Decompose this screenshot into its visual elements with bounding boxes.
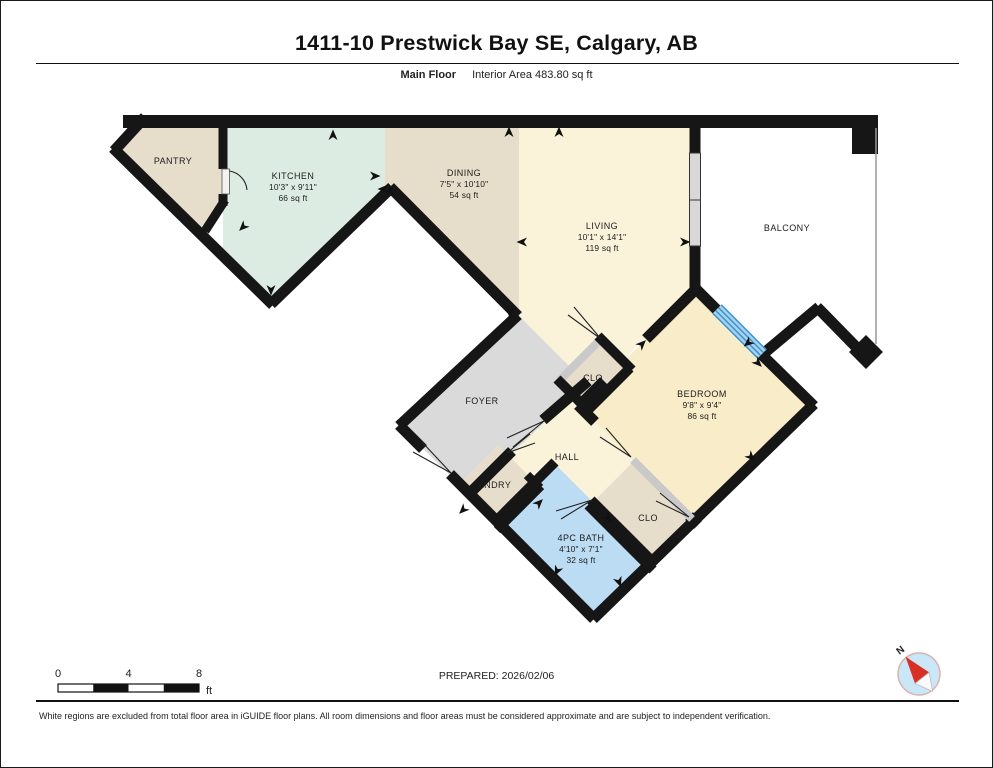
bedroom-sqft: 86 sq ft <box>687 411 717 421</box>
living-window <box>690 153 701 246</box>
dining-sqft: 54 sq ft <box>449 190 479 200</box>
floorplan-page: 1411-10 Prestwick Bay SE, Calgary, AB Ma… <box>0 0 993 768</box>
hall-label: HALL <box>555 452 579 462</box>
compass-north-label: N <box>895 644 907 657</box>
pantry-label: PANTRY <box>154 156 192 166</box>
footer-divider <box>36 700 959 702</box>
living-dims: 10'1" x 14'1" <box>578 232 627 242</box>
kitchen-label: KITCHEN <box>272 171 315 181</box>
balcony-label: BALCONY <box>764 223 810 233</box>
bedroom-closet-label: CLO <box>638 513 658 523</box>
dining-dims: 7'5" x 10'10" <box>440 179 489 189</box>
scale-unit-label: ft <box>206 685 212 697</box>
laundry-label: LNDRY <box>479 480 512 490</box>
dining-label: DINING <box>447 168 481 178</box>
kitchen-sqft: 66 sq ft <box>278 193 308 203</box>
bath-label: 4PC BATH <box>558 533 605 543</box>
living-sqft: 119 sq ft <box>585 243 619 253</box>
foyer-label: FOYER <box>465 396 498 406</box>
disclaimer-text: White regions are excluded from total fl… <box>39 711 959 721</box>
bedroom-label: BEDROOM <box>677 389 727 399</box>
prepared-date: PREPARED: 2026/02/06 <box>1 670 992 682</box>
kitchen-dims: 10'3" x 9'11" <box>269 182 317 192</box>
floorplan-canvas: PANTRY KITCHEN 10'3" x 9'11" 66 sq ft DI… <box>1 1 993 768</box>
compass: N <box>881 633 949 704</box>
bath-dims: 4'10" x 7'1" <box>559 544 603 554</box>
hall-closet-label: CLO <box>583 373 603 383</box>
bath-sqft: 32 sq ft <box>566 555 596 565</box>
bedroom-dims: 9'8" x 9'4" <box>683 400 722 410</box>
living-label: LIVING <box>586 221 618 231</box>
